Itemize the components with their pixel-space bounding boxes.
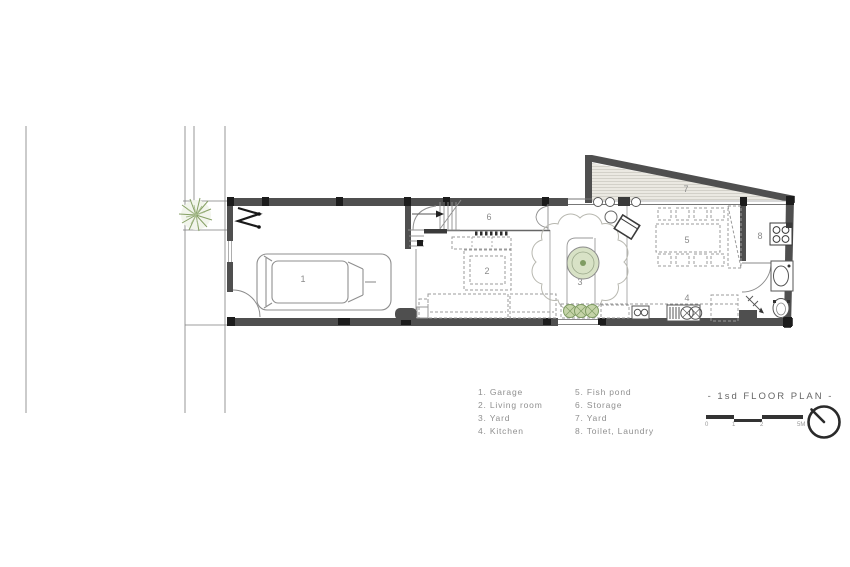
floor-plan-drawing: 1 2 3 4 5 6 7 8 <box>0 0 850 567</box>
legend-column-2: 5. Fish pond 6. Storage 7. Yard 8. Toile… <box>575 386 654 438</box>
kitchen-wall-pier <box>739 310 757 324</box>
car-icon <box>257 254 391 310</box>
legend-item-toilet-laundry: 8. Toilet, Laundry <box>575 425 654 438</box>
toilet-door-arc <box>742 263 771 292</box>
tall-cabinet <box>728 206 741 268</box>
legend-item-garage: 1. Garage <box>478 386 543 399</box>
stove-icon <box>667 305 702 321</box>
bathroom-sink-icon <box>771 261 793 291</box>
sofa <box>419 294 556 318</box>
garage-area <box>226 208 417 320</box>
room-number-8: 8 <box>757 231 762 241</box>
title-block: - 1sd FLOOR PLAN - 0 1 2 5M <box>698 391 843 402</box>
scale-bar: 0 1 2 5M <box>706 415 806 431</box>
storage-room <box>452 204 548 249</box>
room-number-2: 2 <box>484 266 489 276</box>
scale-tick-5m: 5M <box>797 422 805 428</box>
fish-pond-icon <box>567 247 599 279</box>
room-number-7: 7 <box>683 184 688 194</box>
folding-gate-icon <box>238 208 261 229</box>
legend-item-storage: 6. Storage <box>575 399 654 412</box>
toilet-laundry-room <box>742 223 793 318</box>
legend-item-living-room: 2. Living room <box>478 399 543 412</box>
legend-item-fish-pond: 5. Fish pond <box>575 386 654 399</box>
room-number-1: 1 <box>300 274 305 284</box>
legend-item-yard: 3. Yard <box>478 412 543 425</box>
garage-side-window <box>226 241 235 262</box>
floor-plan-canvas: 1 2 3 4 5 6 7 8 1. Garage 2. Living room… <box>0 0 850 567</box>
plan-title: - 1sd FLOOR PLAN - <box>698 391 843 402</box>
scale-bar-segment <box>762 415 803 419</box>
garage-door-arc <box>233 290 260 317</box>
street-tree-icon <box>179 198 212 231</box>
room-number-3: 3 <box>577 277 582 287</box>
living-room <box>417 250 556 318</box>
staircase <box>408 200 461 246</box>
scale-bar-segment <box>706 415 734 419</box>
north-arrow-icon <box>809 407 840 438</box>
room-number-6: 6 <box>486 212 491 222</box>
room-number-4: 4 <box>684 293 689 303</box>
shrub-boxes <box>561 304 601 318</box>
building-walls <box>227 155 795 328</box>
room-number-5: 5 <box>684 235 689 245</box>
dining-area <box>656 206 741 268</box>
scale-bar-segment <box>734 419 762 423</box>
garden-stool <box>605 211 617 223</box>
scale-tick-2: 2 <box>760 422 763 428</box>
washing-machine-icon <box>770 223 792 245</box>
garage-step-planter <box>395 308 417 320</box>
legend-item-kitchen: 4. Kitchen <box>478 425 543 438</box>
site-boundary-lines <box>26 126 227 413</box>
scale-tick-0: 0 <box>705 422 708 428</box>
sink-unit-icon <box>632 306 649 319</box>
legend-column-1: 1. Garage 2. Living room 3. Yard 4. Kitc… <box>478 386 543 438</box>
scale-tick-1: 1 <box>732 422 735 428</box>
kitchen-island <box>711 295 738 321</box>
legend-item-yard-7: 7. Yard <box>575 412 654 425</box>
